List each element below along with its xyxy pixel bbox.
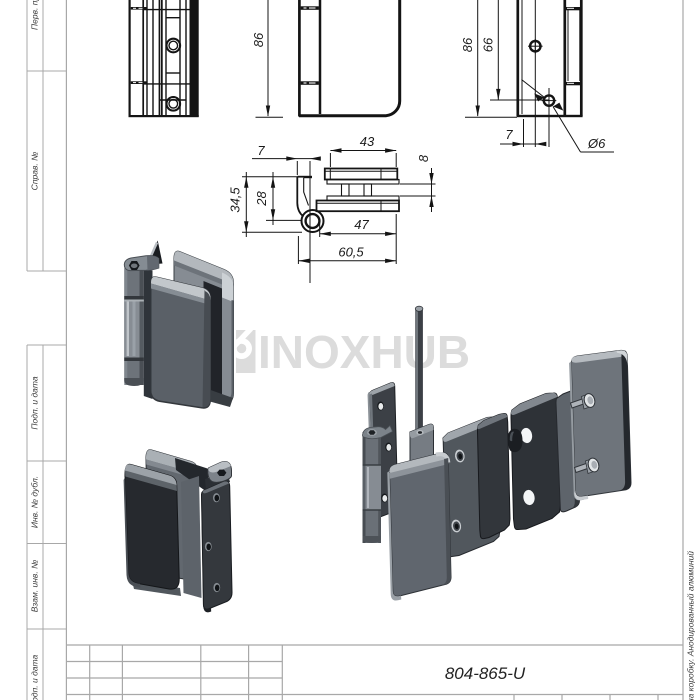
svg-text:Инв. № дубл.: Инв. № дубл.	[30, 476, 40, 528]
svg-text:86: 86	[460, 37, 475, 52]
svg-text:Справ. №: Справ. №	[30, 152, 40, 191]
svg-text:Подп. и дата: Подп. и дата	[30, 376, 40, 429]
svg-text:на коробку. Анодированный алюм: на коробку. Анодированный алюминий	[686, 551, 696, 700]
svg-text:7: 7	[257, 143, 265, 158]
svg-text:86: 86	[251, 32, 266, 47]
svg-text:8: 8	[416, 154, 431, 162]
svg-text:7: 7	[505, 127, 513, 142]
svg-text:Ø6: Ø6	[587, 136, 606, 151]
svg-text:66: 66	[481, 37, 496, 52]
svg-text:28: 28	[254, 191, 269, 207]
svg-text:60,5: 60,5	[338, 245, 364, 260]
svg-text:Перв. примен.: Перв. примен.	[30, 0, 40, 30]
svg-text:43: 43	[360, 134, 375, 149]
svg-text:47: 47	[354, 217, 369, 232]
svg-text:34,5: 34,5	[228, 187, 243, 213]
svg-text:INOXHUB: INOXHUB	[258, 326, 470, 378]
svg-text:Взам. инв. №: Взам. инв. №	[30, 560, 40, 613]
svg-text:804-865-U: 804-865-U	[445, 664, 526, 683]
svg-text:Подп. и дата: Подп. и дата	[30, 655, 40, 700]
